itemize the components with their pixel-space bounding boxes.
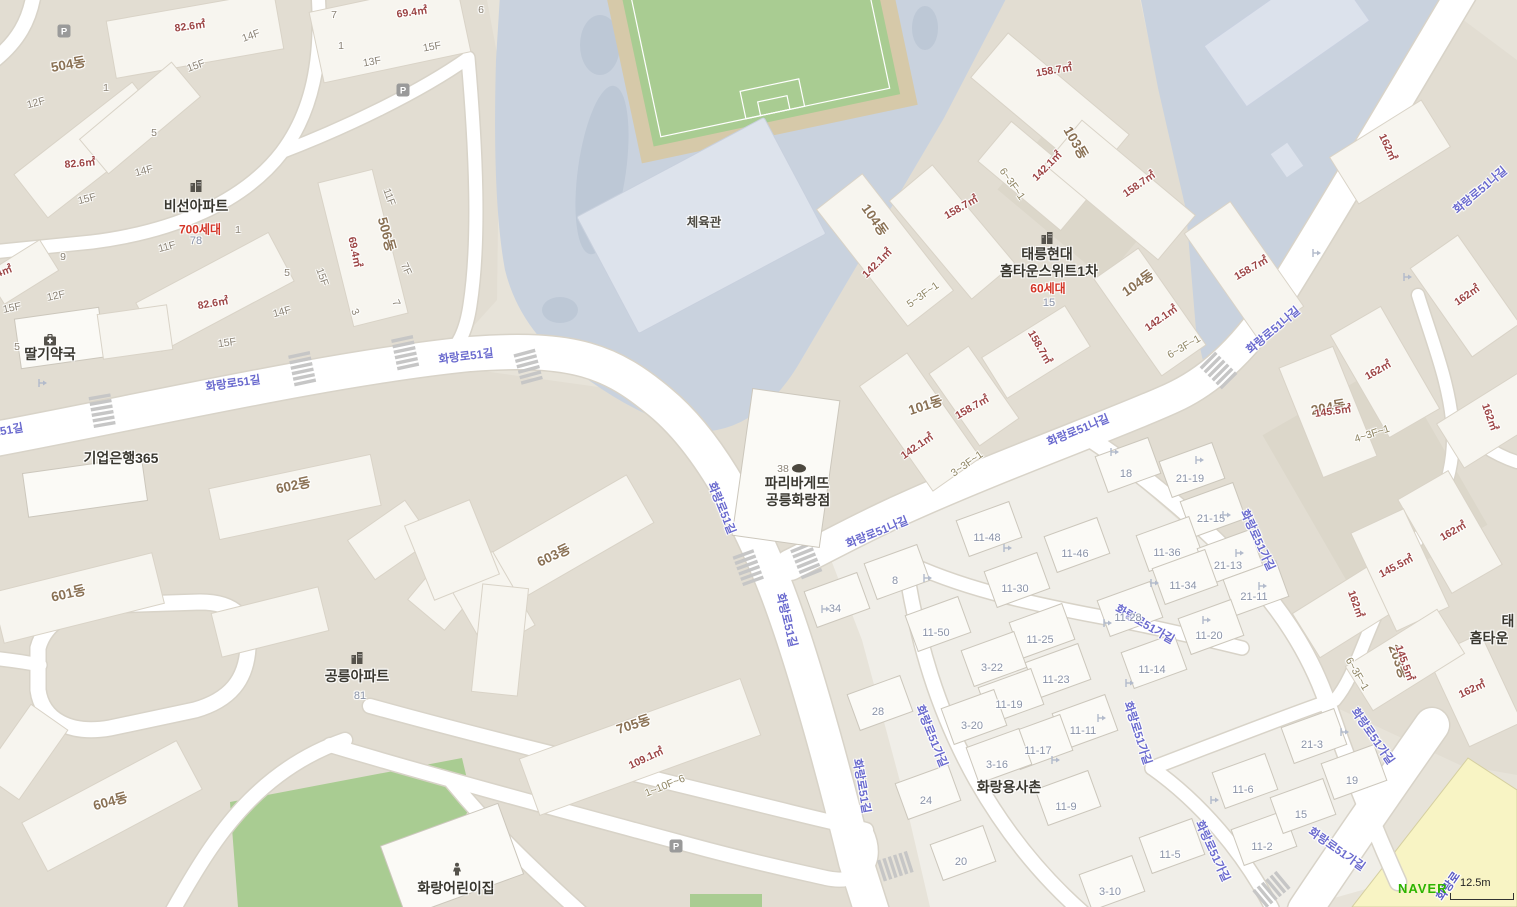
map-label-road-12: 화랑로51가길 bbox=[912, 703, 951, 770]
entrance-icon bbox=[1195, 455, 1206, 465]
map-label-lot-99: 8 bbox=[892, 575, 898, 587]
map-label-floor-84: 12F bbox=[46, 288, 66, 303]
map-label-area-35: 69.4㎡ bbox=[344, 235, 365, 268]
poi-biseon-apartment[interactable]: 비선아파트 bbox=[164, 196, 228, 216]
apartment-icon[interactable] bbox=[190, 180, 203, 192]
map-label-lot-122: 11-9 bbox=[1055, 801, 1076, 813]
map-label-area-46: 109.1㎡ bbox=[626, 743, 666, 772]
map-label-area-43: 158.7㎡ bbox=[1231, 252, 1270, 283]
map-label-area-48: 162㎡ bbox=[1451, 281, 1483, 309]
map-label-lot-105: 11-36 bbox=[1153, 547, 1180, 559]
map-label-floor-77: 15F bbox=[313, 266, 330, 287]
map-label-dong-23: 604동 bbox=[91, 786, 130, 814]
map-label-floor-72: 7 bbox=[331, 9, 337, 21]
map-label-floor-78: 7F bbox=[398, 261, 414, 277]
map-label-road-1: 화랑로51길 bbox=[205, 371, 262, 395]
map-label-hh-134: 60세대 bbox=[1030, 280, 1065, 297]
map-label-lot-127: 15 bbox=[1295, 809, 1307, 821]
entrance-icon bbox=[1222, 510, 1233, 520]
map-label-road-6: 화랑로51나길 bbox=[844, 512, 911, 551]
map-label-area-39: 142.1㎡ bbox=[898, 429, 937, 462]
map-label-road-16: 화랑로51가길 bbox=[1306, 824, 1369, 875]
map-label-area-50: 162㎡ bbox=[1478, 401, 1502, 432]
map-label-range-58: 6~3F~1 bbox=[997, 166, 1028, 203]
map-label-floor-79: 1 bbox=[235, 224, 241, 236]
map-label-range-59: 5~3F~1 bbox=[905, 280, 942, 311]
map-label-road-13: 화랑로51가길 bbox=[1120, 699, 1156, 766]
map-label-area-57: 4㎡ bbox=[0, 261, 14, 281]
map-label-area-42: 158.7㎡ bbox=[1120, 167, 1159, 200]
parking-icon: P bbox=[396, 83, 410, 97]
map-label-area-49: 162㎡ bbox=[1362, 356, 1394, 383]
entrance-icon bbox=[821, 604, 832, 614]
map-label-road-11: 화랑로51가길 bbox=[1113, 601, 1178, 648]
map-label-area-45: 158.7㎡ bbox=[952, 391, 991, 422]
map-label-area-52: 162㎡ bbox=[1344, 588, 1368, 619]
map-label-area-55: 145.5㎡ bbox=[1376, 551, 1416, 582]
map-label-road-0: 화랑로51길 bbox=[0, 419, 25, 444]
map-viewport[interactable]: 화랑로51길화랑로51길화랑로51길화랑로51길화랑로51길화랑로51길화랑로5… bbox=[0, 0, 1517, 907]
map-label-floor-66: 14F bbox=[240, 27, 261, 44]
map-label-lot-101: 21-19 bbox=[1176, 473, 1204, 485]
map-label-area-40: 158.7㎡ bbox=[1035, 59, 1074, 80]
map-label-lot-124: 11-5 bbox=[1159, 849, 1180, 861]
map-label-area-41: 158.7㎡ bbox=[941, 191, 980, 222]
map-label-road-7: 화랑로51나길 bbox=[1045, 410, 1112, 449]
map-label-range-63: 6~3F~1 bbox=[1343, 655, 1371, 692]
map-label-lot-115: 11-23 bbox=[1042, 674, 1069, 686]
map-label-lot-95: 28 bbox=[872, 706, 884, 718]
map-label-floor-69: 14F bbox=[134, 163, 155, 179]
map-label-hh-131: 700세대 bbox=[179, 221, 221, 238]
map-label-road-5: 화랑로51길 bbox=[849, 757, 874, 814]
poi-hwarang-daycare[interactable]: 화랑어린이집 bbox=[417, 878, 494, 898]
map-label-dong-25: 101동 bbox=[905, 389, 944, 419]
map-label-lot-116: 11-14 bbox=[1138, 664, 1165, 676]
map-label-road-8: 화랑로51나길 bbox=[1243, 303, 1304, 357]
map-label-area-38: 142.1㎡ bbox=[1142, 301, 1181, 334]
map-label-dong-24: 705동 bbox=[613, 708, 652, 738]
map-label-lot-110: 11-28 bbox=[1114, 612, 1141, 624]
map-label-floor-87: 5 bbox=[14, 341, 20, 353]
entrance-icon bbox=[1403, 272, 1414, 282]
map-label-floor-81: 5 bbox=[284, 267, 290, 279]
map-label-road-3: 화랑로51길 bbox=[704, 479, 739, 536]
map-label-lot-113: 11-20 bbox=[1195, 630, 1222, 642]
map-label-range-60: 6~3F~1 bbox=[1165, 333, 1202, 361]
apartment-icon[interactable] bbox=[1041, 232, 1054, 244]
map-label-lot-126: 11-2 bbox=[1251, 841, 1272, 853]
poi-ddalgi-pharmacy[interactable]: 딸기약국 bbox=[24, 344, 76, 364]
map-label-lot-103: 11-48 bbox=[973, 532, 1000, 544]
map-label-road-15: 화랑로51가길 bbox=[1348, 705, 1399, 768]
map-label-lot-114: 3-22 bbox=[981, 662, 1003, 674]
map-label-lot-125: 11-6 bbox=[1232, 784, 1253, 796]
map-label-lot-104: 11-46 bbox=[1061, 548, 1088, 560]
map-label-lot-96: 24 bbox=[920, 795, 932, 807]
bakery-icon[interactable] bbox=[792, 463, 807, 473]
map-label-lot-119: 11-11 bbox=[1070, 725, 1097, 737]
entrance-icon bbox=[923, 573, 934, 583]
map-label-dong-22: 603동 bbox=[533, 538, 573, 571]
map-label-floor-75: 15F bbox=[422, 40, 442, 55]
entrance-icon bbox=[1110, 447, 1121, 457]
map-label-area-31: 82.6㎡ bbox=[174, 16, 207, 35]
parking-icon: P bbox=[669, 839, 683, 853]
map-label-area-36: 142.1㎡ bbox=[1029, 148, 1066, 185]
scale-line bbox=[1450, 893, 1514, 900]
poi-paris-baguette-line2[interactable]: 공릉화랑점 bbox=[766, 490, 830, 510]
map-label-lot-117: 11-19 bbox=[995, 699, 1022, 711]
map-label-lot-120: 11-17 bbox=[1024, 745, 1051, 757]
entrance-icon bbox=[1125, 678, 1136, 688]
map-label-area-53: 162㎡ bbox=[1456, 676, 1488, 701]
svg-text:P: P bbox=[61, 27, 68, 38]
map-label-lot-111: 11-50 bbox=[922, 627, 949, 639]
poi-gymnasium[interactable]: 체육관 bbox=[687, 212, 722, 231]
map-label-dong-27: 104동 bbox=[858, 199, 894, 239]
map-label-road-14: 화랑로51가길 bbox=[1192, 818, 1234, 884]
map-label-floor-73: 1 bbox=[338, 40, 344, 52]
apartment-icon[interactable] bbox=[351, 652, 364, 664]
map-label-lot-118: 3-20 bbox=[961, 720, 983, 732]
entrance-icon bbox=[1051, 755, 1062, 765]
map-label-dong-18: 504동 bbox=[49, 50, 87, 76]
map-label-lot-128: 19 bbox=[1346, 775, 1358, 787]
map-label-area-34: 69.4㎡ bbox=[396, 2, 429, 21]
svg-text:P: P bbox=[400, 86, 407, 97]
map-label-lot-112: 11-25 bbox=[1026, 634, 1053, 646]
map-label-lot-107: 11-30 bbox=[1001, 583, 1028, 595]
map-label-road-4: 화랑로51길 bbox=[773, 591, 802, 648]
map-label-floor-68: 15F bbox=[77, 191, 98, 207]
map-label-dong-26: 103동 bbox=[1060, 122, 1095, 162]
entrance-icon bbox=[1340, 727, 1351, 737]
entrance-icon bbox=[1003, 543, 1014, 553]
map-label-road-2: 화랑로51길 bbox=[438, 345, 495, 368]
map-label-floor-85: 15F bbox=[2, 300, 22, 315]
map-label-floor-71: 5 bbox=[151, 127, 157, 139]
scale-value: 12.5m bbox=[1460, 877, 1491, 889]
svg-text:P: P bbox=[673, 842, 680, 853]
entrance-icon bbox=[1150, 578, 1161, 588]
map-label-floor-88: 6 bbox=[478, 4, 484, 16]
map-label-floor-86: 15F bbox=[217, 336, 237, 350]
map-label-lot-97: 20 bbox=[955, 856, 967, 868]
entrance-icon bbox=[1312, 248, 1323, 258]
map-label-lot-123: 3-10 bbox=[1099, 886, 1121, 898]
entrance-icon bbox=[1097, 713, 1108, 723]
map-label-dong-20: 601동 bbox=[49, 578, 88, 605]
map-label-area-44: 158.7㎡ bbox=[1024, 327, 1055, 366]
map-label-floor-67: 12F bbox=[26, 95, 47, 111]
map-label-floor-80: 11F bbox=[157, 239, 177, 255]
poi-hwarang-yongsachon[interactable]: 화랑용사촌 bbox=[977, 777, 1041, 797]
child-icon[interactable] bbox=[452, 863, 463, 876]
map-label-road-10: 화랑로51가길 bbox=[1237, 507, 1279, 573]
entrance-icon bbox=[1210, 795, 1221, 805]
map-label-lot-100: 18 bbox=[1120, 468, 1132, 480]
map-label-range-61: 3~3F~1 bbox=[949, 449, 986, 480]
map-label-range-62: 4~3F~1 bbox=[1353, 423, 1391, 446]
map-label-floor-65: 15F bbox=[185, 57, 206, 74]
map-label-lotp-94: 15 bbox=[1043, 297, 1055, 309]
map-label-area-47: 162㎡ bbox=[1375, 131, 1400, 163]
entrance-icon bbox=[1103, 618, 1114, 628]
poi-ibk-bank-365[interactable]: 기업은행365 bbox=[84, 448, 159, 468]
map-label-area-33: 82.6㎡ bbox=[196, 293, 229, 313]
map-label-layer: 화랑로51길화랑로51길화랑로51길화랑로51길화랑로51길화랑로51길화랑로5… bbox=[0, 0, 1517, 907]
parking-icon: P bbox=[57, 24, 71, 38]
poi-clipped-line2[interactable]: 홈타운 bbox=[1470, 628, 1509, 648]
map-label-floor-83: 9 bbox=[60, 251, 66, 263]
map-label-floor-82: 14F bbox=[272, 304, 293, 320]
map-label-road-9: 화랑로51나길 bbox=[1450, 163, 1511, 217]
map-label-lot-106: 21-13 bbox=[1214, 560, 1242, 572]
map-label-dong-28: 104동 bbox=[1117, 264, 1157, 300]
naver-logo[interactable]: NAVER bbox=[1398, 881, 1448, 896]
poi-taereung-hyundai-line2[interactable]: 홈타운스위트1차 bbox=[1000, 261, 1098, 281]
entrance-icon bbox=[1258, 581, 1269, 591]
map-label-floor-90: 7 bbox=[389, 298, 402, 308]
entrance-icon bbox=[38, 378, 49, 388]
entrance-icon bbox=[1235, 548, 1246, 558]
entrance-icon bbox=[1202, 615, 1213, 625]
map-label-floor-70: 1 bbox=[103, 82, 109, 94]
poi-gongneung-apartment[interactable]: 공릉아파트 bbox=[325, 666, 389, 686]
map-label-area-32: 82.6㎡ bbox=[64, 154, 96, 172]
map-label-lot-121: 3-16 bbox=[986, 759, 1008, 771]
map-label-floor-74: 13F bbox=[362, 55, 382, 70]
pharmacy-icon[interactable] bbox=[44, 334, 57, 346]
map-label-floor-76: 11F bbox=[380, 187, 397, 207]
map-label-area-51: 162㎡ bbox=[1437, 517, 1469, 544]
map-label-floor-89: 3 bbox=[348, 307, 361, 317]
map-label-dong-21: 602동 bbox=[274, 471, 312, 498]
map-label-area-37: 142.1㎡ bbox=[859, 245, 896, 282]
map-label-lot-108: 11-34 bbox=[1169, 580, 1196, 592]
map-label-dong-19: 506동 bbox=[374, 215, 402, 254]
map-label-lotp-93: 81 bbox=[354, 690, 366, 702]
map-label-range-64: 1~10F~6 bbox=[643, 773, 686, 800]
map-label-lot-109: 21-11 bbox=[1240, 591, 1267, 603]
map-label-lot-129: 21-3 bbox=[1301, 739, 1323, 751]
